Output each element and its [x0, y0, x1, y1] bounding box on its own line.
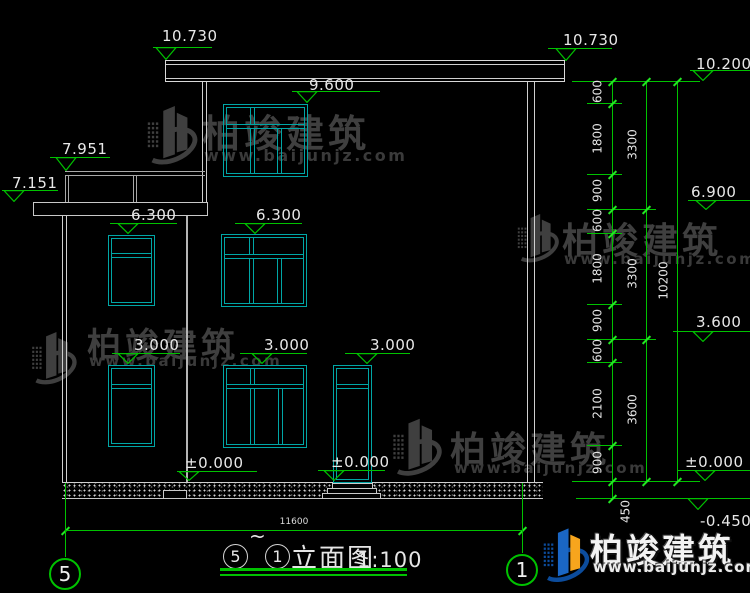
brand-site: www.baijunjz.com: [593, 558, 750, 576]
brand-building-icon: [538, 524, 592, 586]
elevation-drawing-canvas: 柏竣建筑www.baijunjz.com 柏竣建筑www.baijunjz.co…: [0, 0, 750, 593]
brand-logo: 柏竣建筑 www.baijunjz.com: [0, 0, 750, 593]
